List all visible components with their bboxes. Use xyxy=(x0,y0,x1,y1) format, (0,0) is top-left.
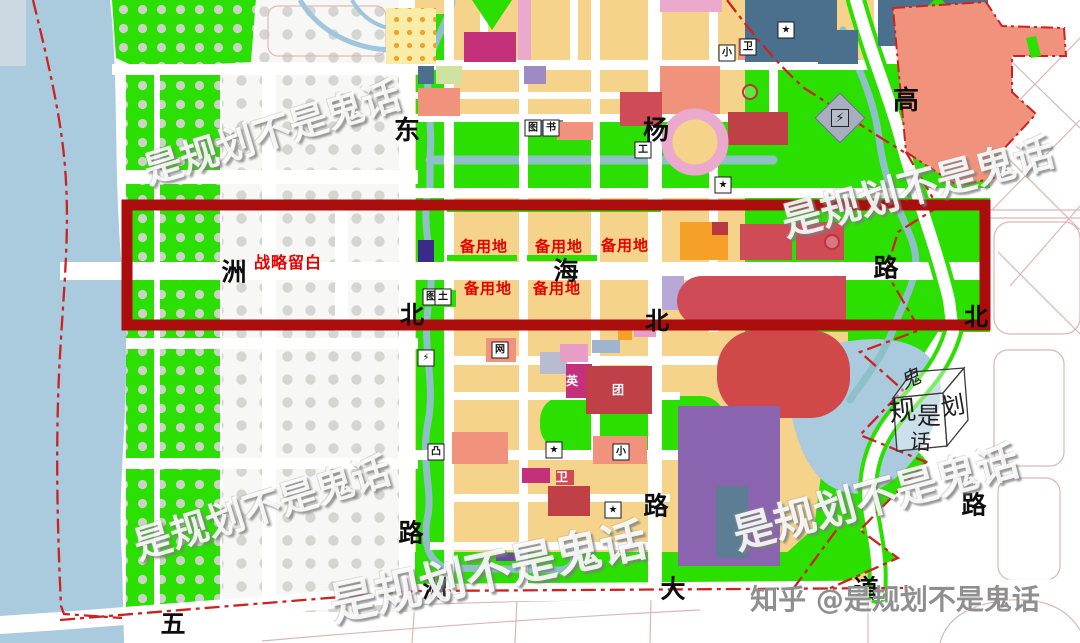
map-graphics xyxy=(0,0,1080,643)
strategic-blank-area xyxy=(222,0,418,612)
zhihu-credit: 知乎 @是规划不是鬼话 xyxy=(750,586,1040,614)
planning-map: 东杨高洲海路北北北路路路五洲大道战略留白备用地备用地备用地备用地备用地是规划不是… xyxy=(0,0,1080,643)
far-bank xyxy=(0,0,26,66)
